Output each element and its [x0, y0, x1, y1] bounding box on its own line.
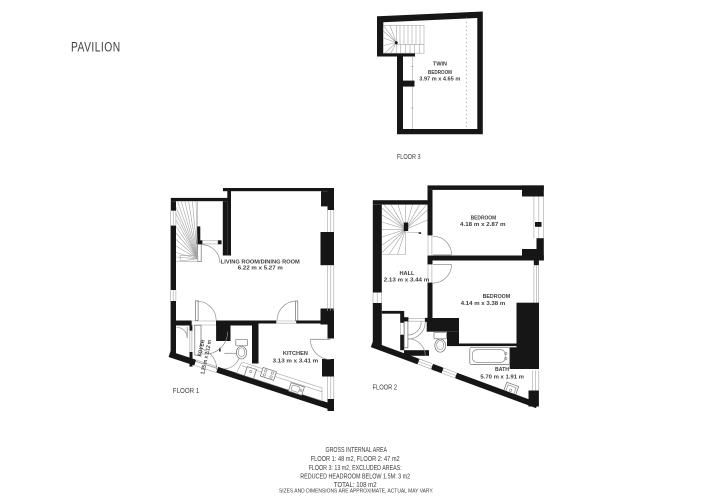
- svg-text:BEDROOM: BEDROOM: [483, 294, 511, 300]
- svg-text:FLOOR 3: FLOOR 3: [397, 154, 421, 161]
- svg-text:3.97 m x 4.65 m: 3.97 m x 4.65 m: [419, 76, 460, 82]
- svg-text:4.14 m x 3.38 m: 4.14 m x 3.38 m: [461, 301, 506, 307]
- svg-text:BATH: BATH: [495, 367, 509, 373]
- svg-text:4.18 m x 2.87 m: 4.18 m x 2.87 m: [460, 222, 506, 228]
- svg-text:FLOOR 2: FLOOR 2: [373, 385, 398, 392]
- svg-text:FLOOR 1: 48 m2, FLOOR 2: 47 m2: FLOOR 1: 48 m2, FLOOR 2: 47 m2: [311, 456, 400, 463]
- svg-text:6.22 m x 5.27 m: 6.22 m x 5.27 m: [238, 266, 283, 272]
- svg-text:3.13 m x 3.41 m: 3.13 m x 3.41 m: [273, 359, 319, 365]
- svg-text:2.13 m x 3.44 m: 2.13 m x 3.44 m: [384, 278, 430, 284]
- svg-text:HALL: HALL: [400, 271, 416, 277]
- svg-text:TWIN: TWIN: [433, 61, 447, 67]
- svg-text:5.70 m x 1.91 m: 5.70 m x 1.91 m: [480, 374, 524, 380]
- svg-text:PAVILION: PAVILION: [71, 39, 121, 54]
- svg-text:BEDROOM: BEDROOM: [471, 216, 497, 222]
- svg-text:BEDROOM: BEDROOM: [428, 70, 452, 76]
- svg-text:FLOOR 1: FLOOR 1: [173, 388, 200, 395]
- svg-text:GROSS INTERNAL AREA: GROSS INTERNAL AREA: [326, 447, 388, 454]
- svg-text:LIVING ROOM/DINING ROOM: LIVING ROOM/DINING ROOM: [221, 260, 300, 266]
- svg-text:REDUCED HEADROOM BELOW 1.5M: 3: REDUCED HEADROOM BELOW 1.5M: 3 m2: [300, 473, 410, 480]
- svg-text:KITCHEN: KITCHEN: [283, 351, 308, 357]
- svg-text:SIZES AND DIMENSIONS ARE APPRO: SIZES AND DIMENSIONS ARE APPROXIMATE, AC…: [279, 489, 434, 495]
- svg-text:FLOOR 3: 13 m2, EXCLUDED AREAS: FLOOR 3: 13 m2, EXCLUDED AREAS:: [309, 465, 402, 472]
